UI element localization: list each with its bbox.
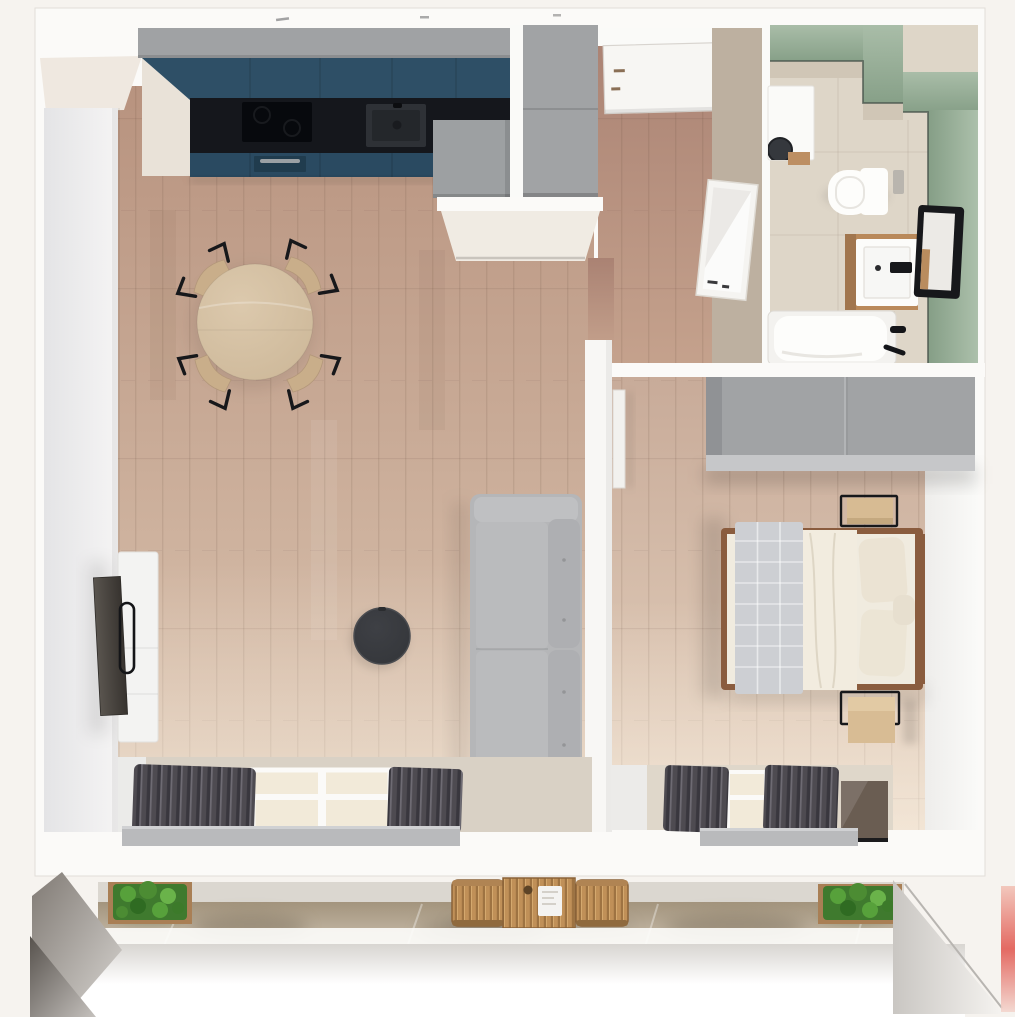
kitchen-hall-wall-gap (510, 25, 523, 197)
bath-green-wall-upper-right (903, 72, 978, 112)
balcony-railing (50, 944, 965, 1017)
plank-streak (311, 420, 337, 640)
cabinet-edge (138, 55, 512, 58)
curtain-right (387, 767, 463, 834)
dining-table (197, 264, 313, 380)
basin-faucet (890, 262, 912, 273)
sill-highlight (122, 826, 460, 829)
wardrobe-front-face (706, 455, 975, 471)
sofa-back-cushion (548, 519, 580, 648)
nightstand-face (847, 518, 893, 524)
sink-faucet (393, 103, 402, 108)
bedroom-door-open (613, 390, 633, 488)
window-frame-bar (253, 794, 390, 800)
sofa-back-cushion (548, 650, 580, 772)
hallway-tall-cabinet (523, 25, 598, 197)
partition-wall-top (437, 197, 603, 211)
right-edge-artifact (1001, 886, 1015, 1012)
oven-handle (260, 159, 300, 163)
kitchen-base-cabinet-front (190, 153, 437, 177)
wall-edge-shade (606, 340, 612, 832)
bathtub (768, 311, 906, 365)
nightstand-top-face (848, 697, 895, 711)
window-frame-bar (728, 795, 766, 800)
sofa-armrest (474, 497, 578, 522)
fridge-cabinet-top (433, 120, 513, 198)
tv-unit (88, 552, 158, 742)
quilted-runner (735, 522, 803, 694)
door-lock (611, 87, 620, 90)
sofa-seat-cushion (476, 522, 548, 649)
sofa-seat-cushion (476, 651, 548, 773)
curtain-left (663, 765, 729, 833)
living-hall-floor-bridge (588, 258, 614, 354)
partition-wall-face (441, 211, 600, 261)
washer-shelf (788, 152, 810, 165)
cushion-button (562, 618, 566, 622)
wardrobe (704, 377, 976, 484)
kitchen-upper-cabinet-front (142, 58, 510, 100)
headboard (915, 534, 925, 684)
pillow (858, 536, 908, 603)
basin-drain (875, 265, 881, 271)
bathroom-mirror (914, 205, 965, 299)
wall-vent-mark (420, 16, 429, 19)
oven (254, 156, 306, 172)
duvet (803, 530, 857, 690)
entrance-door (603, 42, 731, 113)
plank-streak (150, 210, 176, 400)
sofa (452, 494, 582, 802)
plank-streak (419, 250, 445, 430)
window-glass (728, 772, 766, 830)
cooktop (242, 102, 312, 142)
kitchen-upper-cabinet-top (138, 28, 512, 58)
wardrobe-side-face (706, 377, 722, 455)
planter-left (108, 881, 192, 924)
bathroom (768, 25, 978, 365)
table-tray (538, 886, 562, 916)
cabinet-shadow-edge (523, 193, 598, 197)
door-handle (614, 69, 625, 72)
tub-faucet (890, 326, 906, 333)
folded-blanket (893, 595, 915, 625)
kitchen-floor-shadow (190, 177, 437, 183)
cabinet-seam (523, 108, 598, 110)
flush-plate (893, 170, 904, 194)
coffee-table-handle (378, 607, 386, 611)
table-bowl (524, 886, 533, 895)
curtain-left (132, 764, 256, 836)
washing-machine (768, 86, 814, 165)
curtain-right (763, 765, 839, 834)
cushion-button (562, 558, 566, 562)
window-wall-wedge (611, 765, 647, 830)
balcony-chair (452, 880, 504, 926)
nightstand-top (841, 496, 897, 526)
floor-plan-render (0, 0, 1015, 1017)
bedroom (585, 340, 985, 846)
cushion-button (562, 743, 566, 747)
cushion-button (562, 690, 566, 694)
sill-highlight (700, 828, 858, 831)
planter-right (818, 883, 902, 924)
vanity-side (845, 234, 856, 310)
balcony (30, 872, 1015, 1017)
wall-vent-mark (553, 14, 561, 17)
sink-drain (393, 121, 402, 130)
double-bed (702, 518, 925, 702)
bath-green-duct-block (863, 25, 903, 103)
balcony-chair (576, 880, 628, 926)
bedroom-north-wall (598, 363, 985, 377)
kitchen (138, 14, 561, 198)
bath-green-wall-top (770, 25, 863, 61)
vanity-sink (845, 234, 918, 310)
